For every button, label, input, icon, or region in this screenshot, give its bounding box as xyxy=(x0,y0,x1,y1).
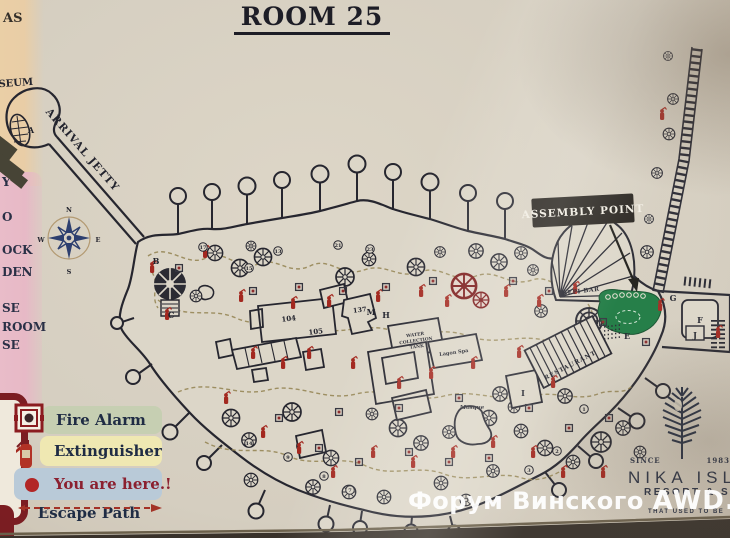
svg-text:7: 7 xyxy=(348,488,352,494)
label-137: 137 xyxy=(353,305,367,315)
watermark-brand: AWD.RU xyxy=(653,486,730,516)
compass-n: N xyxy=(66,206,72,214)
compass-s: S xyxy=(67,268,72,276)
label-105: 105 xyxy=(308,326,324,337)
compass-rose-icon xyxy=(48,217,90,259)
dock-platform xyxy=(658,281,730,352)
compass-e: E xyxy=(96,236,101,244)
svg-text:14: 14 xyxy=(246,441,253,447)
marker-letter-f: F xyxy=(697,315,703,325)
svg-text:17: 17 xyxy=(200,245,207,251)
svg-text:3: 3 xyxy=(527,468,531,474)
compass-w: W xyxy=(36,236,45,244)
you-are-here-dot-icon xyxy=(24,477,40,493)
marker-letter-b: B xyxy=(153,256,160,266)
svg-text:23: 23 xyxy=(367,247,374,253)
svg-text:13: 13 xyxy=(275,249,282,255)
marker-letter-m: M xyxy=(367,307,376,317)
svg-text:15: 15 xyxy=(246,266,253,272)
marker-letter-c: C xyxy=(168,310,174,320)
svg-text:2: 2 xyxy=(555,449,559,455)
marker-letter-h: H xyxy=(382,310,390,320)
extinguisher-icon xyxy=(14,434,40,470)
svg-text:8: 8 xyxy=(322,474,326,480)
palm-leaf-icon xyxy=(652,383,728,461)
svg-text:9: 9 xyxy=(286,455,290,461)
marker-letter-a: A xyxy=(27,125,35,135)
label-104: 104 xyxy=(281,313,297,324)
marker-letter-g: G xyxy=(670,293,677,303)
svg-text:21: 21 xyxy=(335,243,342,249)
fire-alarm-icon xyxy=(14,402,44,434)
map-photo: AS Y O OCK DEN SE ROOM SE ROOM 25 xyxy=(0,0,730,538)
watermark-text: Форум Винского xyxy=(408,487,644,515)
marker-letter-e: E xyxy=(624,331,630,341)
marker-letter-i: I xyxy=(521,388,525,398)
resort-map: SEUM A ARRIVAL JETTY N S W E xyxy=(0,0,730,538)
mosque-label: Mosque xyxy=(459,405,485,411)
museum-label: SEUM xyxy=(0,77,33,90)
museum-area xyxy=(0,88,144,244)
escape-path-arrow-icon xyxy=(14,502,164,514)
marker-letter-j: J xyxy=(692,330,697,340)
watermark: Форум Винского AWD.RU xyxy=(408,486,730,516)
arrival-jetty-path xyxy=(49,137,144,244)
svg-text:1: 1 xyxy=(582,407,585,413)
